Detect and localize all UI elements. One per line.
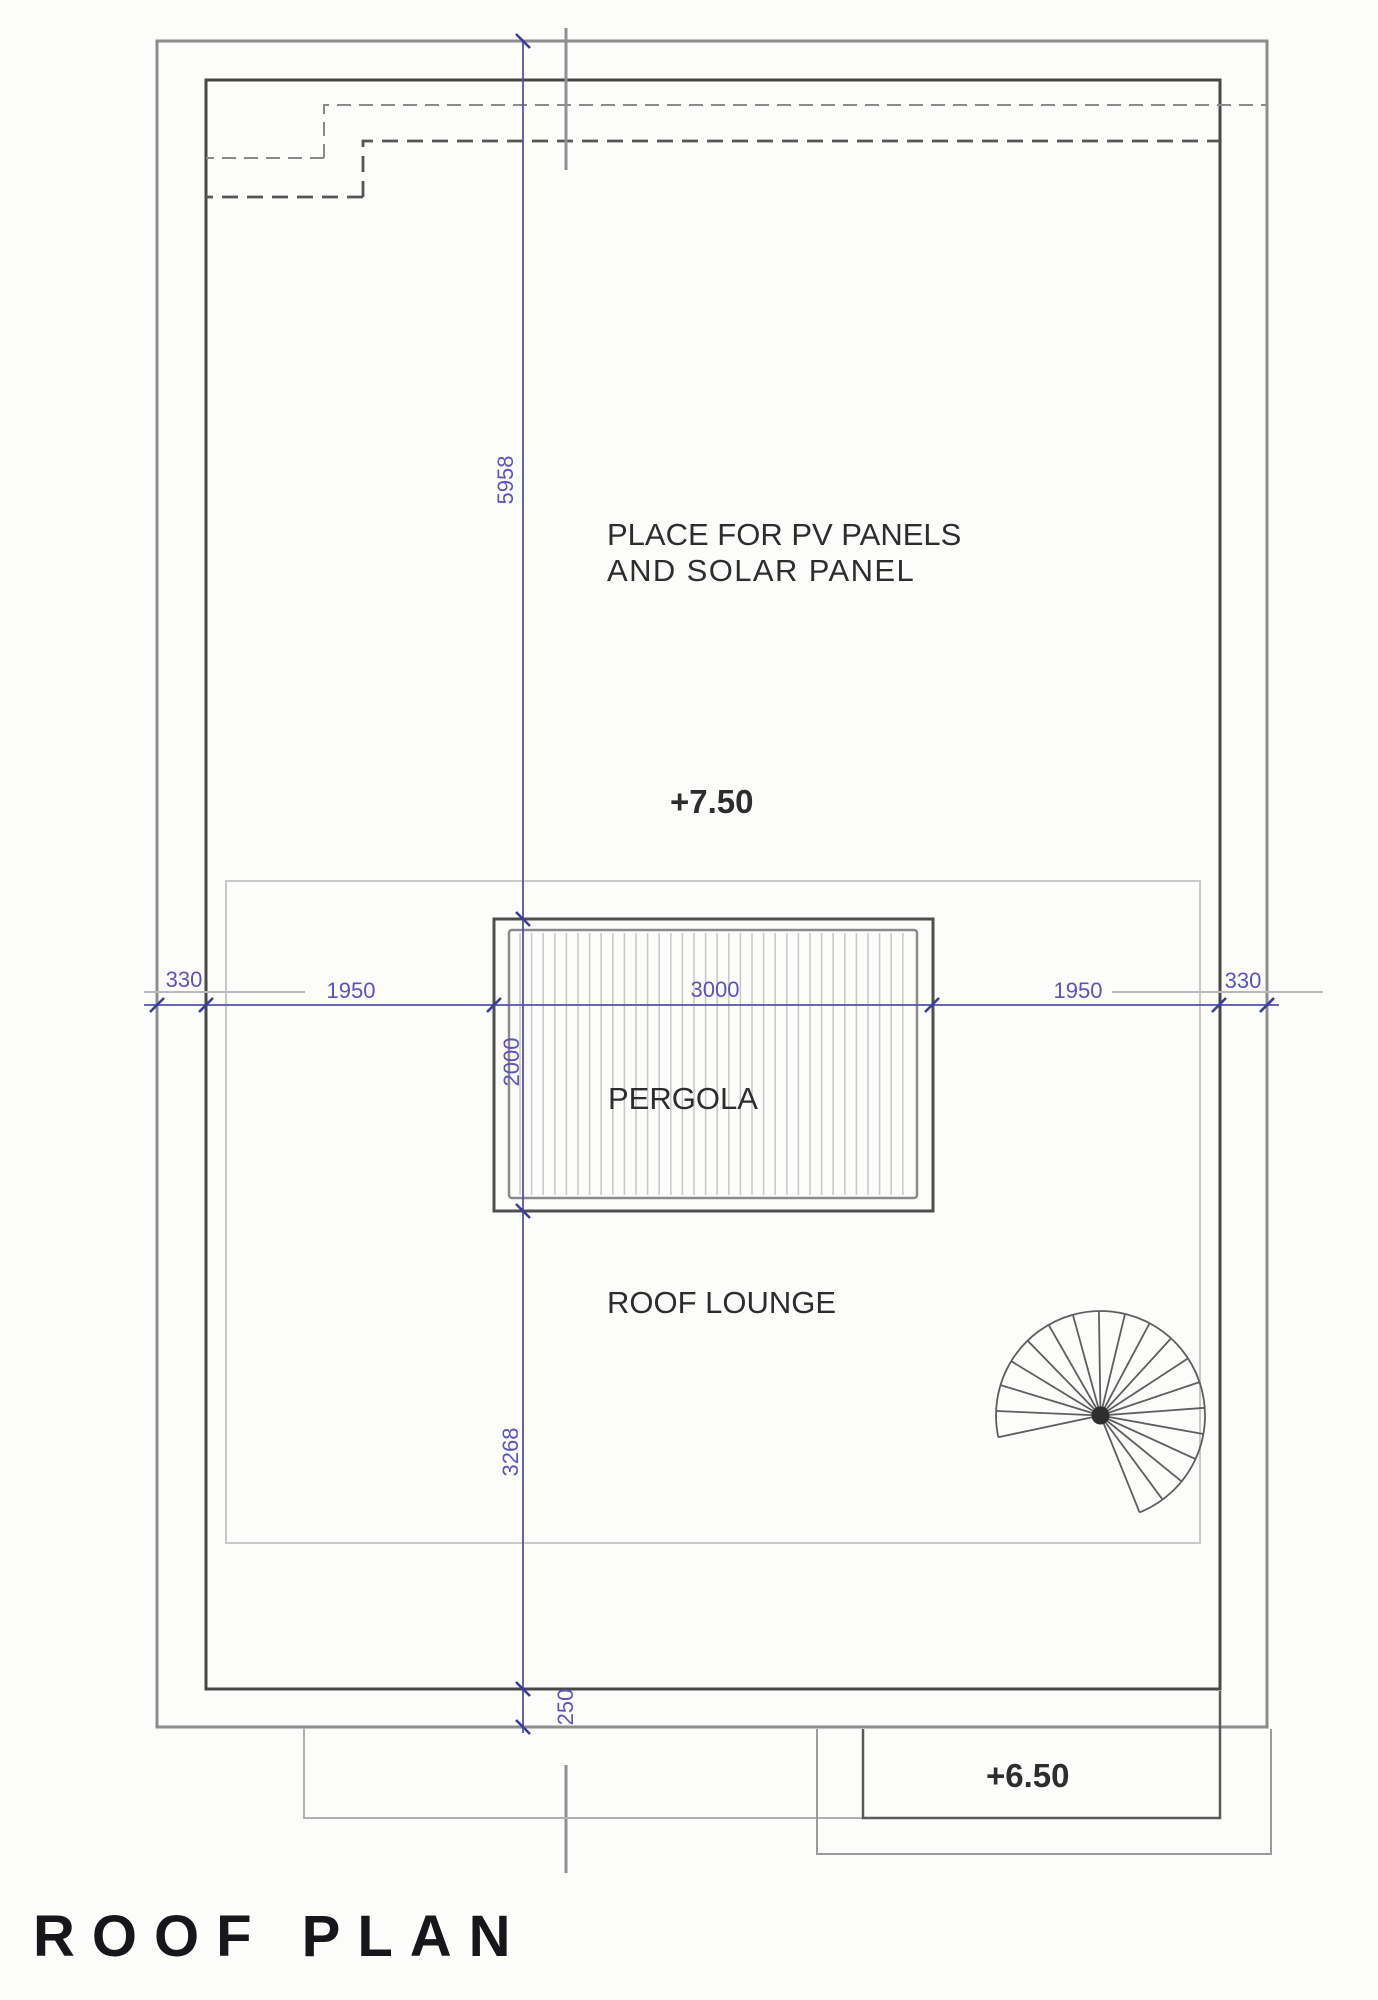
svg-text:1950: 1950: [327, 978, 376, 1003]
svg-text:3000: 3000: [691, 977, 740, 1002]
svg-text:PERGOLA: PERGOLA: [608, 1081, 758, 1116]
svg-text:PLACE FOR PV PANELS: PLACE FOR PV PANELS: [607, 517, 961, 552]
svg-text:+7.50: +7.50: [670, 783, 754, 820]
svg-text:330: 330: [1225, 968, 1262, 993]
svg-text:1950: 1950: [1054, 978, 1103, 1003]
svg-text:2000: 2000: [499, 1038, 524, 1087]
svg-text:3268: 3268: [498, 1428, 523, 1477]
svg-text:330: 330: [166, 967, 203, 992]
svg-text:ROOF PLAN: ROOF PLAN: [33, 1904, 528, 1969]
svg-text:AND SOLAR PANEL: AND SOLAR PANEL: [607, 553, 915, 588]
svg-text:5958: 5958: [493, 456, 518, 505]
svg-text:+6.50: +6.50: [986, 1757, 1070, 1794]
svg-text:ROOF LOUNGE: ROOF LOUNGE: [607, 1285, 836, 1320]
svg-text:250: 250: [553, 1689, 578, 1726]
